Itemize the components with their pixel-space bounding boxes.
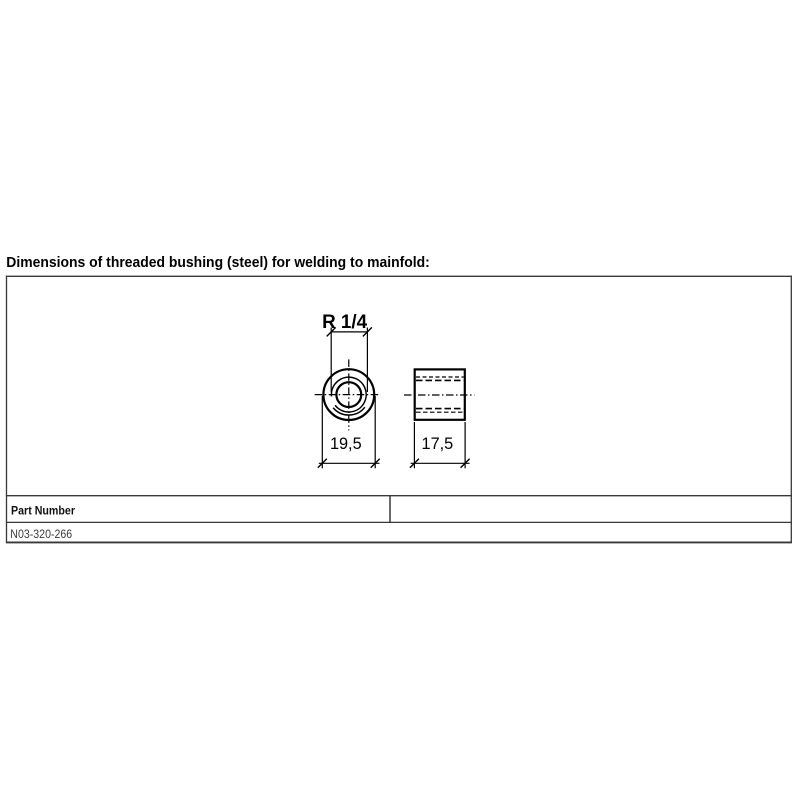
svg-text:19,5: 19,5 xyxy=(330,435,362,453)
svg-text:N03-320-266: N03-320-266 xyxy=(10,529,72,541)
svg-text:Part Number: Part Number xyxy=(11,504,75,518)
svg-text:Dimensions of threaded bushing: Dimensions of threaded bushing (steel) f… xyxy=(6,254,430,271)
svg-text:R 1/4: R 1/4 xyxy=(322,311,367,333)
svg-text:17,5: 17,5 xyxy=(422,435,454,453)
